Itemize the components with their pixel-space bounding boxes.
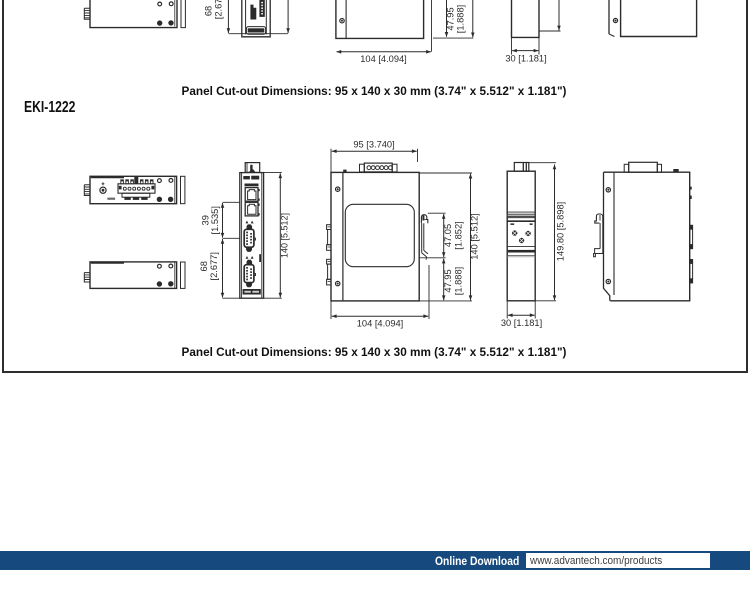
svg-text:47.95: 47.95 (443, 269, 453, 292)
svg-text:[2.677]: [2.677] (213, 0, 223, 19)
svg-text:95 [3.740]: 95 [3.740] (353, 140, 394, 150)
svg-text:[1.852]: [1.852] (454, 221, 464, 249)
svg-text:39: 39 (200, 215, 210, 225)
svg-text:[2.677]: [2.677] (209, 252, 219, 280)
svg-text:140 [5.512]: 140 [5.512] (470, 213, 480, 260)
svg-text:149.80 [5.898]: 149.80 [5.898] (556, 202, 566, 261)
svg-text:[1.888]: [1.888] (454, 267, 464, 295)
svg-text:68: 68 (199, 261, 209, 271)
svg-text:68: 68 (204, 6, 214, 16)
svg-text:104 [4.094]: 104 [4.094] (357, 319, 404, 329)
svg-text:30 [1.181]: 30 [1.181] (501, 318, 542, 328)
svg-text:[1.535]: [1.535] (210, 206, 220, 234)
svg-text:140 [5.512]: 140 [5.512] (279, 213, 289, 258)
svg-text:[1.888]: [1.888] (455, 5, 465, 33)
svg-text:104 [4.094]: 104 [4.094] (360, 54, 407, 64)
svg-text:47.05: 47.05 (443, 224, 453, 247)
svg-text:30 [1.181]: 30 [1.181] (505, 53, 546, 63)
svg-text:47.95: 47.95 (446, 7, 456, 30)
